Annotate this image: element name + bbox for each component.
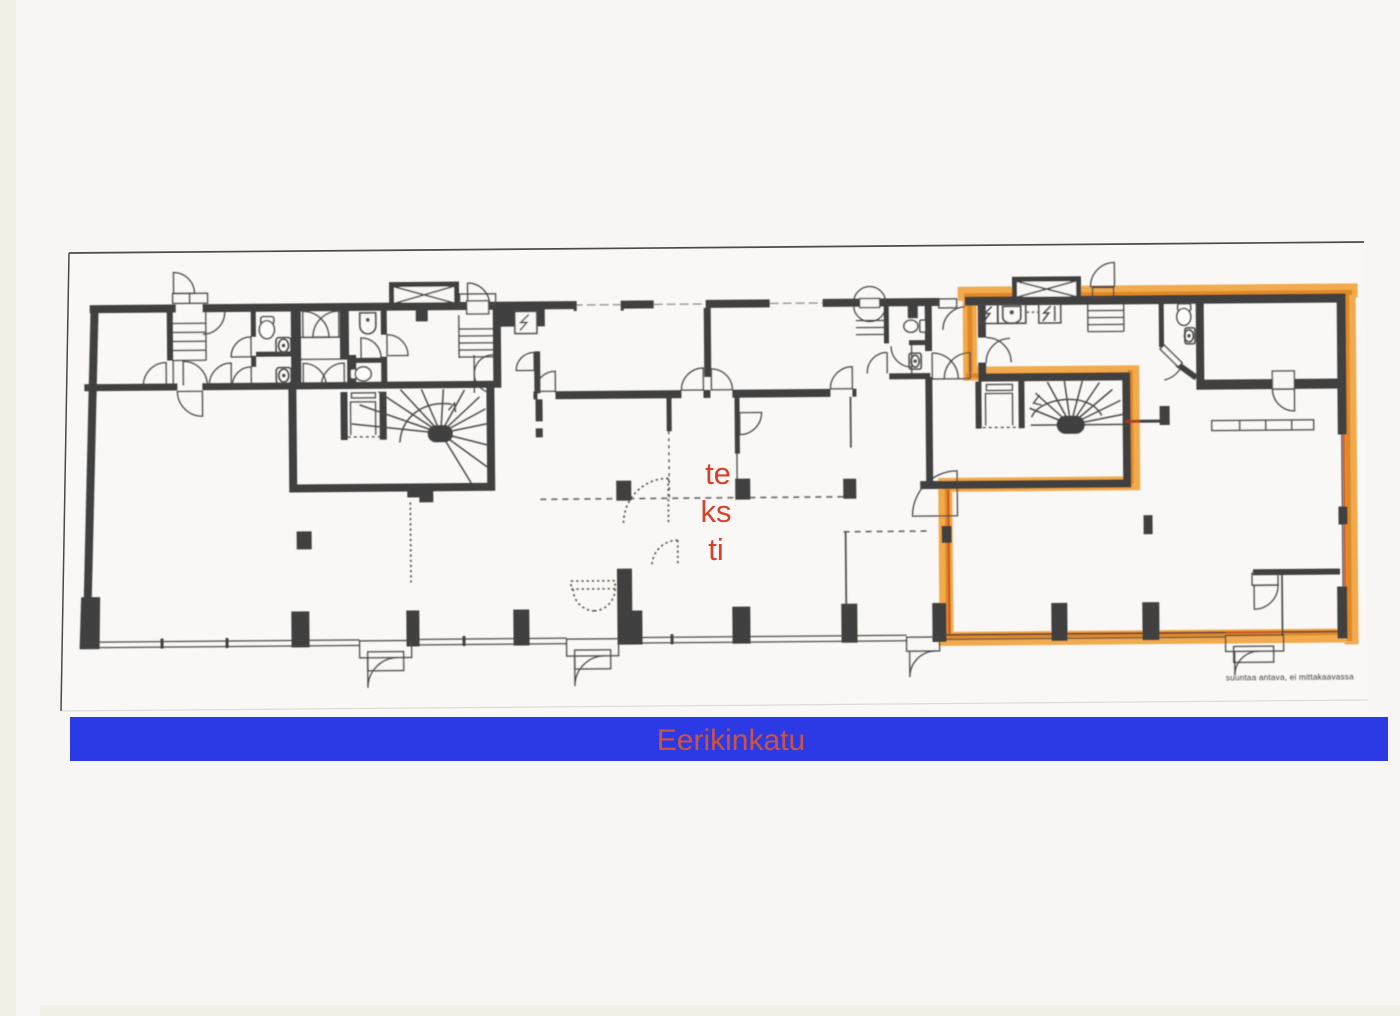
svg-text:ti: ti [708, 532, 724, 567]
svg-text:Eerikinkatu: Eerikinkatu [657, 724, 805, 757]
svg-text:te: te [705, 456, 731, 491]
svg-text:suuntaa antava, ei mittakaavas: suuntaa antava, ei mittakaavassa [1226, 672, 1354, 682]
svg-text:ks: ks [701, 494, 732, 529]
